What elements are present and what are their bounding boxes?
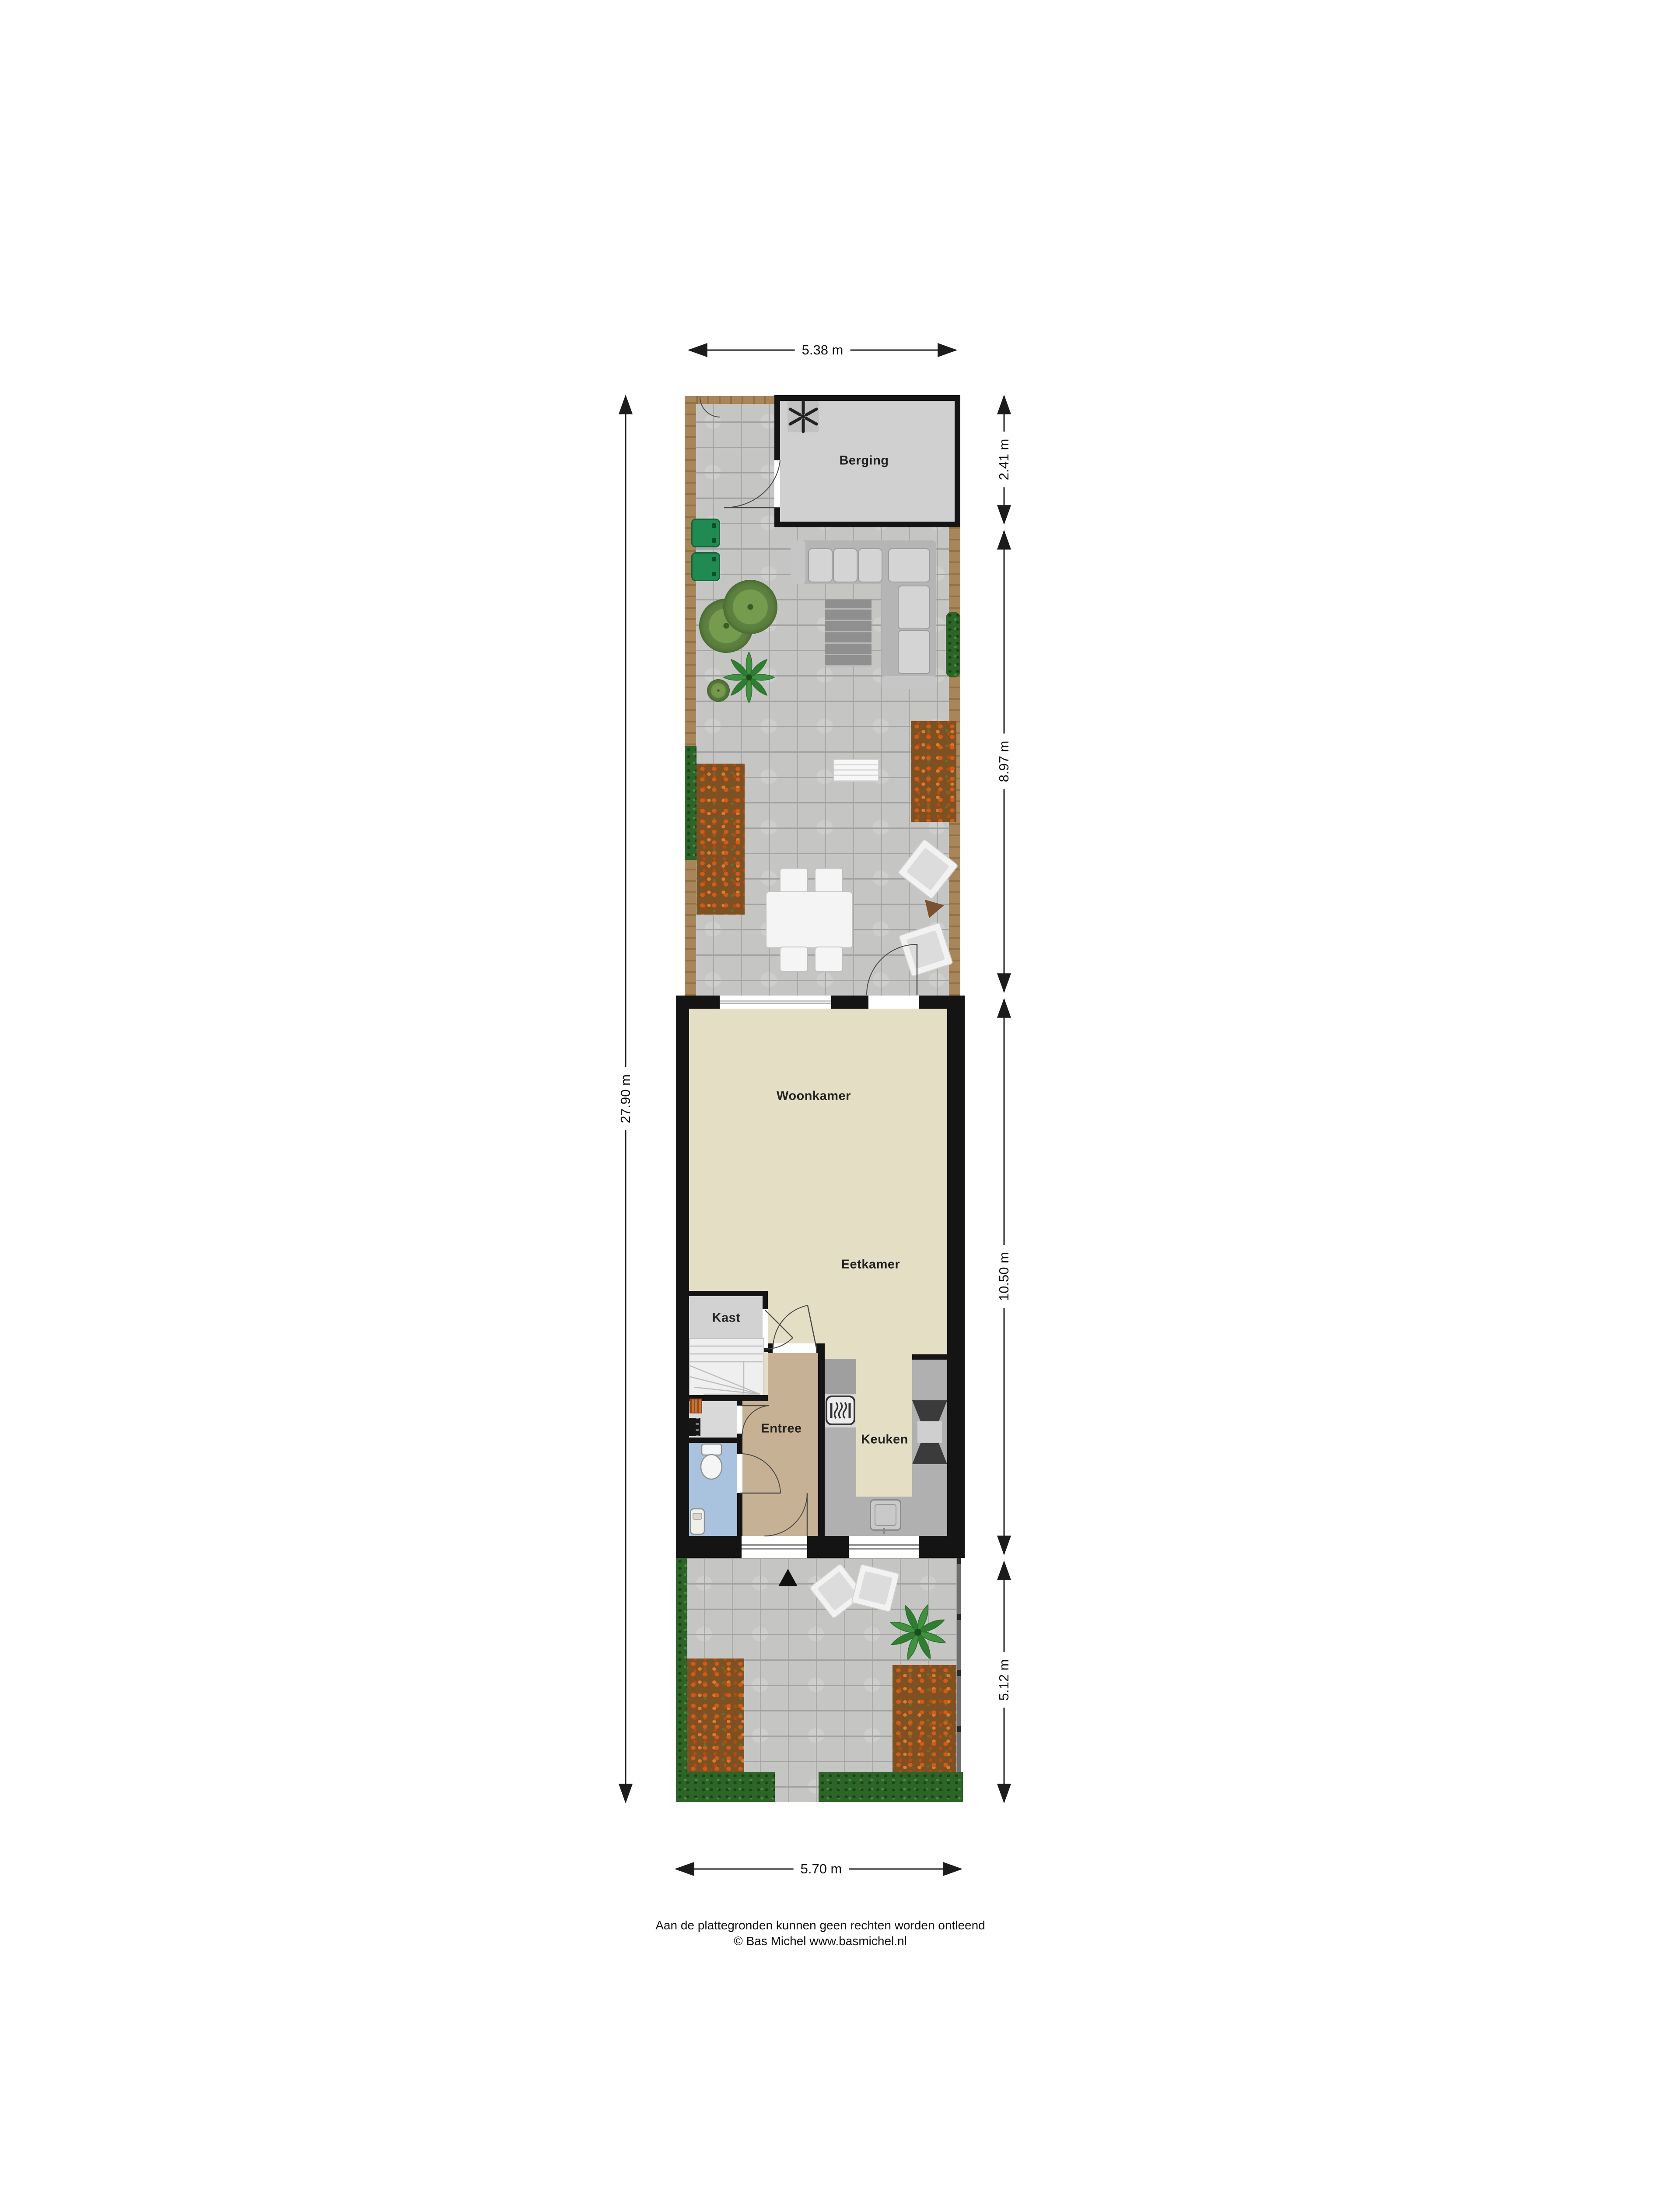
flowerbed-front-right xyxy=(892,1665,956,1772)
hedge-front-bottom-left xyxy=(676,1772,775,1802)
radiator-icon xyxy=(689,1399,702,1413)
heater-pad xyxy=(825,1394,856,1427)
hedge-strip-back-left xyxy=(685,746,696,860)
sofa-cushion xyxy=(833,548,857,582)
front-chair-seat xyxy=(818,1572,857,1611)
front-chair-seat xyxy=(859,1571,892,1605)
flowerbed-front-left xyxy=(687,1659,744,1772)
kitchen-sink-icon xyxy=(870,1499,901,1531)
garden-bench xyxy=(833,759,879,782)
sofa-cushion xyxy=(858,548,882,582)
dim-top-width: 5.38 m xyxy=(795,341,850,359)
dining-chair xyxy=(815,868,843,893)
sofa-armrest xyxy=(882,676,936,689)
flowerbed-back-right xyxy=(911,721,956,822)
living-room-window xyxy=(720,996,831,1009)
dining-chair xyxy=(780,868,808,893)
room-label-berging: Berging xyxy=(839,454,889,468)
dim-back-garden-height: 8.97 m xyxy=(995,734,1013,789)
ventilation-fan-pad xyxy=(787,401,819,432)
room-label-entree: Entree xyxy=(761,1422,801,1436)
sofa-cushion xyxy=(888,548,930,582)
dim-bottom-width: 5.70 m xyxy=(794,1860,849,1878)
sofa-cushion xyxy=(898,630,930,674)
toilet-floor xyxy=(689,1443,737,1536)
footer-copyright: © Bas Michel www.basmichel.nl xyxy=(734,1934,907,1948)
sofa-armrest xyxy=(791,540,805,584)
edge-shrub xyxy=(946,612,960,677)
garden-edge-top xyxy=(685,396,774,404)
kast-wall xyxy=(689,1291,768,1296)
dining-chair xyxy=(815,947,843,972)
toilet-door-opening xyxy=(737,1454,742,1493)
garden-storage-box xyxy=(691,552,720,581)
hedge-front-left xyxy=(676,1558,687,1802)
room-label-kast: Kast xyxy=(712,1311,741,1325)
sofa-cushion xyxy=(808,548,833,582)
front-fence-right xyxy=(957,1558,961,1772)
entree-front-window xyxy=(742,1536,807,1558)
lounge-chair-seat xyxy=(906,848,949,890)
garden-storage-box xyxy=(691,519,720,547)
back-door-opening xyxy=(868,996,919,1009)
cooktop-icon xyxy=(917,1421,942,1443)
floorplan-page: Berging Woonkamer Eetkamer Kast Entree K… xyxy=(0,0,1680,2188)
kitchen-counter-left-upper xyxy=(825,1359,856,1394)
room-label-keuken: Keuken xyxy=(861,1433,908,1447)
small-bush xyxy=(707,679,730,702)
flowerbed-back-left xyxy=(696,764,745,915)
garden-coffee-table xyxy=(825,600,871,666)
meter-toilet-wall xyxy=(689,1438,742,1443)
footer-disclaimer: Aan de plattegronden kunnen geen rechten… xyxy=(655,1918,985,1932)
entree-floor xyxy=(768,1353,818,1536)
dim-berging-height: 2.41 m xyxy=(995,432,1013,487)
sofa-cushion xyxy=(898,586,930,629)
living-hall-door-opening xyxy=(773,1343,816,1353)
meter-door-opening xyxy=(737,1406,742,1434)
garden-dining-table xyxy=(766,891,853,948)
dim-total-height: 27.90 m xyxy=(617,1067,634,1130)
staircase xyxy=(689,1338,764,1397)
dim-front-garden-height: 5.12 m xyxy=(995,1652,1013,1708)
room-label-woonkamer: Woonkamer xyxy=(777,1089,851,1104)
lounge-chair-seat xyxy=(906,930,945,968)
kitchen-stub-wall xyxy=(912,1354,947,1360)
room-label-eetkamer: Eetkamer xyxy=(841,1258,900,1272)
meter-panel-icon xyxy=(689,1418,700,1436)
entree-kitchen-wall xyxy=(818,1343,825,1536)
kitchen-front-window xyxy=(849,1536,919,1558)
garden-edge-left xyxy=(685,396,696,996)
kitchen-sink-basin xyxy=(875,1504,896,1526)
round-tree xyxy=(723,580,777,634)
dim-house-height: 10.50 m xyxy=(995,1245,1013,1308)
berging-door-opening xyxy=(774,460,780,508)
hedge-front-bottom-right xyxy=(819,1772,963,1802)
dining-chair xyxy=(780,947,808,972)
